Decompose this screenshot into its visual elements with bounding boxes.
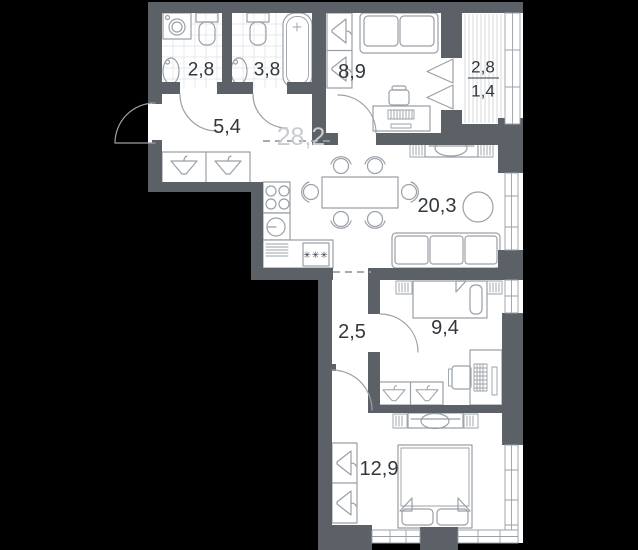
area-label-bedroom-top: 8,9 xyxy=(338,61,366,83)
wall-segment xyxy=(441,13,462,58)
wall-segment xyxy=(318,525,372,550)
floor-plan-canvas: ✳✳✳ xyxy=(0,0,638,550)
wall-segment xyxy=(326,133,338,145)
area-label-bedroom-middle: 9,4 xyxy=(431,317,459,339)
area-label-zone-total: 28,2 xyxy=(277,123,326,151)
double-bed-icon xyxy=(398,445,472,528)
washing-machine-icon xyxy=(163,13,191,39)
window xyxy=(458,530,518,543)
floor-plan-svg: ✳✳✳ xyxy=(0,0,638,550)
desk-icon xyxy=(470,350,502,405)
loggia-area-counted: 1,4 xyxy=(471,82,495,101)
window xyxy=(505,445,518,543)
dining-table-icon xyxy=(322,177,398,208)
wall-segment xyxy=(148,2,162,103)
area-label-hallway: 5,4 xyxy=(213,116,241,138)
area-label-bathroom-small: 2,8 xyxy=(188,60,214,81)
bed-icon xyxy=(413,281,487,318)
loggia-glazing xyxy=(505,13,520,124)
loggia-area-total: 2,8 xyxy=(471,58,495,77)
wall-segment xyxy=(420,527,458,550)
wall-segment xyxy=(251,268,333,280)
bathtub-icon xyxy=(283,13,312,88)
sofa-icon xyxy=(392,233,500,268)
wall-segment xyxy=(217,82,253,94)
wardrobe-icon xyxy=(378,382,443,405)
wall-segment xyxy=(222,13,232,90)
wall-segment xyxy=(368,405,523,413)
door-jamb xyxy=(368,306,380,314)
window xyxy=(372,530,420,543)
sofa-icon xyxy=(360,13,438,53)
wall-segment xyxy=(148,2,523,13)
fridge-symbol: ✳✳✳ xyxy=(303,250,329,260)
desk-icon xyxy=(373,106,430,131)
wall-segment xyxy=(502,313,523,445)
wall-segment xyxy=(162,82,180,94)
wall-segment xyxy=(148,182,263,192)
area-label-corridor: 2,5 xyxy=(338,321,366,343)
wall-segment xyxy=(287,82,326,94)
area-label-kitchen-living: 20,3 xyxy=(418,195,457,217)
wardrobe-icon xyxy=(332,443,357,523)
hallway-wardrobe xyxy=(162,152,250,183)
wall-segment xyxy=(498,250,523,280)
window xyxy=(505,280,518,313)
area-label-bathroom-large: 3,8 xyxy=(254,60,280,81)
wall-segment xyxy=(318,280,332,527)
wall-segment xyxy=(251,182,263,280)
wall-segment xyxy=(498,118,523,173)
area-label-bedroom-main: 12,9 xyxy=(360,458,399,480)
window xyxy=(505,173,518,250)
